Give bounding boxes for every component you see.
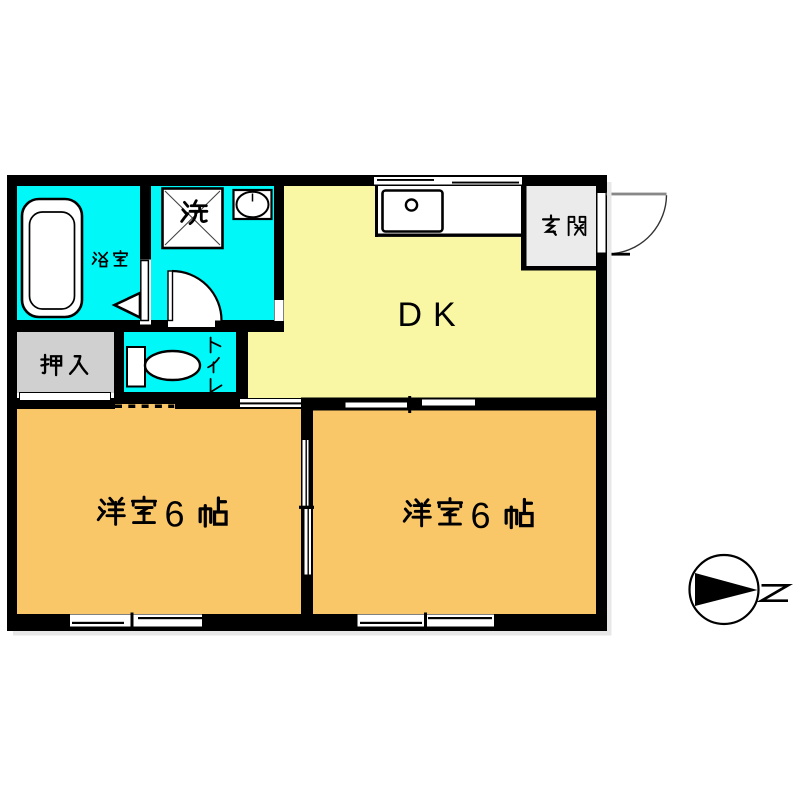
svg-text:K: K bbox=[433, 296, 456, 334]
svg-text:D: D bbox=[398, 296, 423, 334]
svg-text:6: 6 bbox=[471, 495, 491, 536]
svg-text:6: 6 bbox=[165, 494, 185, 535]
